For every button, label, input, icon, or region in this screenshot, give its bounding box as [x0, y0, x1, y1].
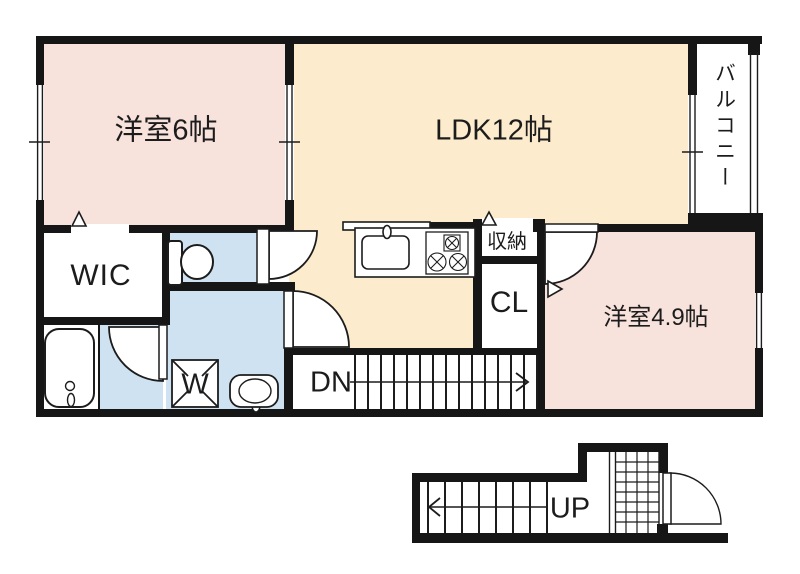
- wall-bed6-ldk-upper: [285, 36, 294, 85]
- entrance-tile-grid: [610, 452, 660, 533]
- wall-entrance-top: [578, 443, 668, 452]
- kitchen-counter: [343, 222, 475, 277]
- wall-entrance-left: [412, 473, 420, 543]
- entrance-door-leaf: [663, 473, 671, 524]
- wic-label: WIC: [70, 261, 131, 291]
- wall-wic-bottom: [36, 317, 170, 325]
- stairs-up: [428, 482, 547, 533]
- wall-right-lower: [755, 348, 763, 417]
- floor-plan: 洋室6帖 LDK12帖 バルコニー WIC 収納 CL 洋室4.9帖 DN W …: [0, 0, 800, 574]
- toilet-bowl: [181, 245, 213, 279]
- wall-bottom: [36, 409, 763, 417]
- wall-balcony-left: [688, 44, 697, 95]
- stairs-down: [350, 355, 537, 409]
- wall-toilet-bottom: [166, 282, 295, 291]
- bedroom49-label: 洋室4.9帖: [603, 306, 708, 330]
- bathtub-icon: [45, 329, 94, 407]
- wall-storage-top-stub: [533, 219, 545, 232]
- wall-stairs-left: [284, 348, 293, 417]
- wall-stairs-top: [285, 348, 543, 355]
- bathtub-drain: [66, 382, 75, 391]
- wall-bath-divider: [98, 325, 100, 409]
- bathtub-faucet: [68, 394, 75, 407]
- wall-top: [36, 36, 762, 44]
- wall-entrance-top-left: [412, 473, 587, 482]
- basin-bowl: [239, 379, 271, 403]
- ldk-label: LDK12帖: [435, 117, 553, 146]
- wall-right-upper: [755, 225, 763, 293]
- washroom-door-leaf: [284, 291, 293, 348]
- storage-label: 収納: [487, 232, 527, 252]
- wall-storage-closet-divider: [473, 256, 545, 264]
- kitchen-faucet-icon: [383, 226, 391, 239]
- bathroom-door-leaf: [159, 325, 167, 379]
- wall-stairs-right: [537, 222, 545, 417]
- window-bed49-right: [755, 293, 763, 348]
- balcony-label: バルコニー: [714, 62, 735, 192]
- closet-label: CL: [490, 288, 528, 318]
- stairs-down-label: DN: [310, 369, 352, 398]
- entrance-door-swing: [670, 473, 721, 524]
- wall-entrance-right-upper: [659, 443, 668, 473]
- balcony-railing: [748, 52, 760, 213]
- bedroom6-label: 洋室6帖: [114, 117, 217, 146]
- washer-label: W: [181, 371, 208, 400]
- stairs-up-label: UP: [550, 495, 590, 524]
- toilet-tank: [168, 241, 182, 285]
- wall-entrance-bottom: [412, 533, 728, 543]
- wall-left-upper: [36, 36, 44, 85]
- bedroom49-door-leaf: [545, 224, 598, 232]
- kitchen-sink: [362, 236, 409, 269]
- wash-basin-icon: [230, 375, 278, 412]
- wall-bed6-bottom-left: [36, 225, 72, 233]
- wall-bed49-top: [598, 224, 763, 232]
- toilet-door-leaf: [257, 229, 269, 284]
